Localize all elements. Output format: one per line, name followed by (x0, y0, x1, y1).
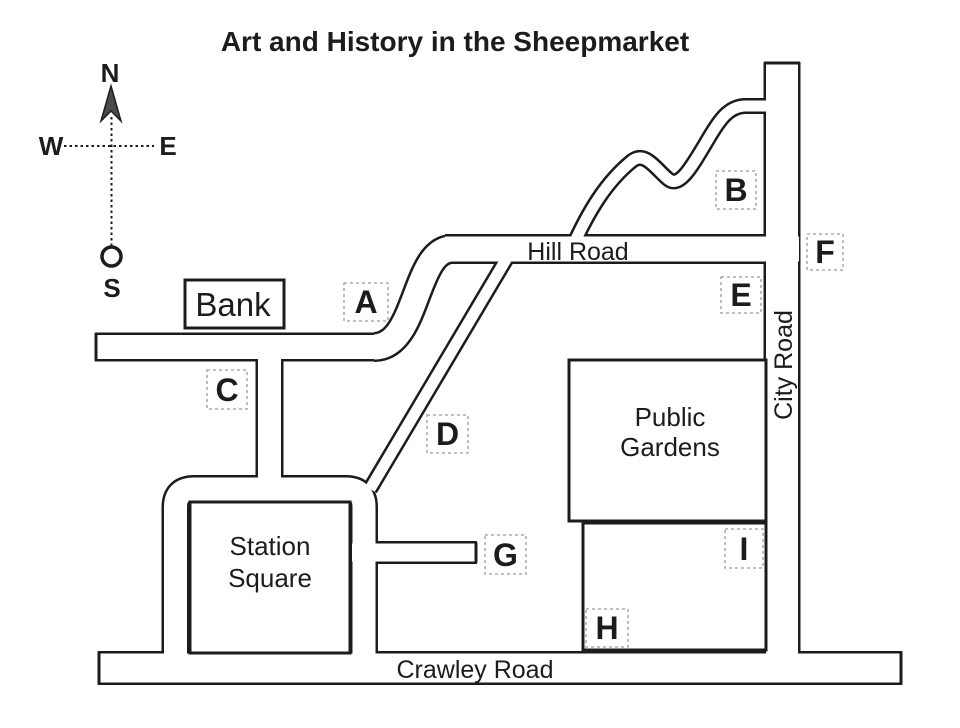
marker-label-i: I (740, 531, 749, 567)
marker-label-d: D (436, 416, 459, 452)
crawley-road-label: Crawley Road (396, 656, 553, 684)
marker-label-c: C (215, 372, 238, 408)
marker-f: F (807, 234, 843, 270)
marker-b: B (716, 171, 756, 209)
marker-label-b: B (724, 172, 747, 208)
compass-rose: N W E S (39, 58, 177, 303)
hill-road-label: Hill Road (527, 238, 628, 266)
station-square-line1: Station (230, 531, 311, 561)
bank-label: Bank (195, 286, 271, 323)
marker-label-e: E (730, 277, 751, 313)
marker-a: A (344, 283, 388, 321)
public-gardens-label: Public Gardens (620, 402, 720, 462)
marker-label-g: G (493, 537, 518, 573)
north-arrow-icon (101, 86, 121, 121)
city-road-label: City Road (770, 310, 798, 420)
marker-label-f: F (815, 234, 835, 270)
compass-west-label: W (39, 131, 64, 161)
public-gardens-line2: Gardens (620, 432, 720, 462)
marker-d: D (427, 415, 468, 453)
marker-label-a: A (354, 284, 377, 320)
marker-g: G (485, 535, 526, 574)
marker-c: C (207, 370, 247, 409)
compass-south-label: S (103, 273, 120, 303)
station-square-line2: Square (228, 563, 312, 593)
marker-label-h: H (595, 610, 618, 646)
sheepmarket-map: Art and History in the Sheepmarket N W E… (0, 0, 960, 728)
public-gardens-line1: Public (635, 402, 706, 432)
map-title: Art and History in the Sheepmarket (221, 26, 689, 57)
map-page: Art and History in the Sheepmarket N W E… (0, 0, 960, 728)
compass-north-label: N (101, 58, 120, 88)
compass-east-label: E (159, 131, 176, 161)
marker-e: E (721, 277, 761, 313)
compass-circle (102, 247, 121, 266)
